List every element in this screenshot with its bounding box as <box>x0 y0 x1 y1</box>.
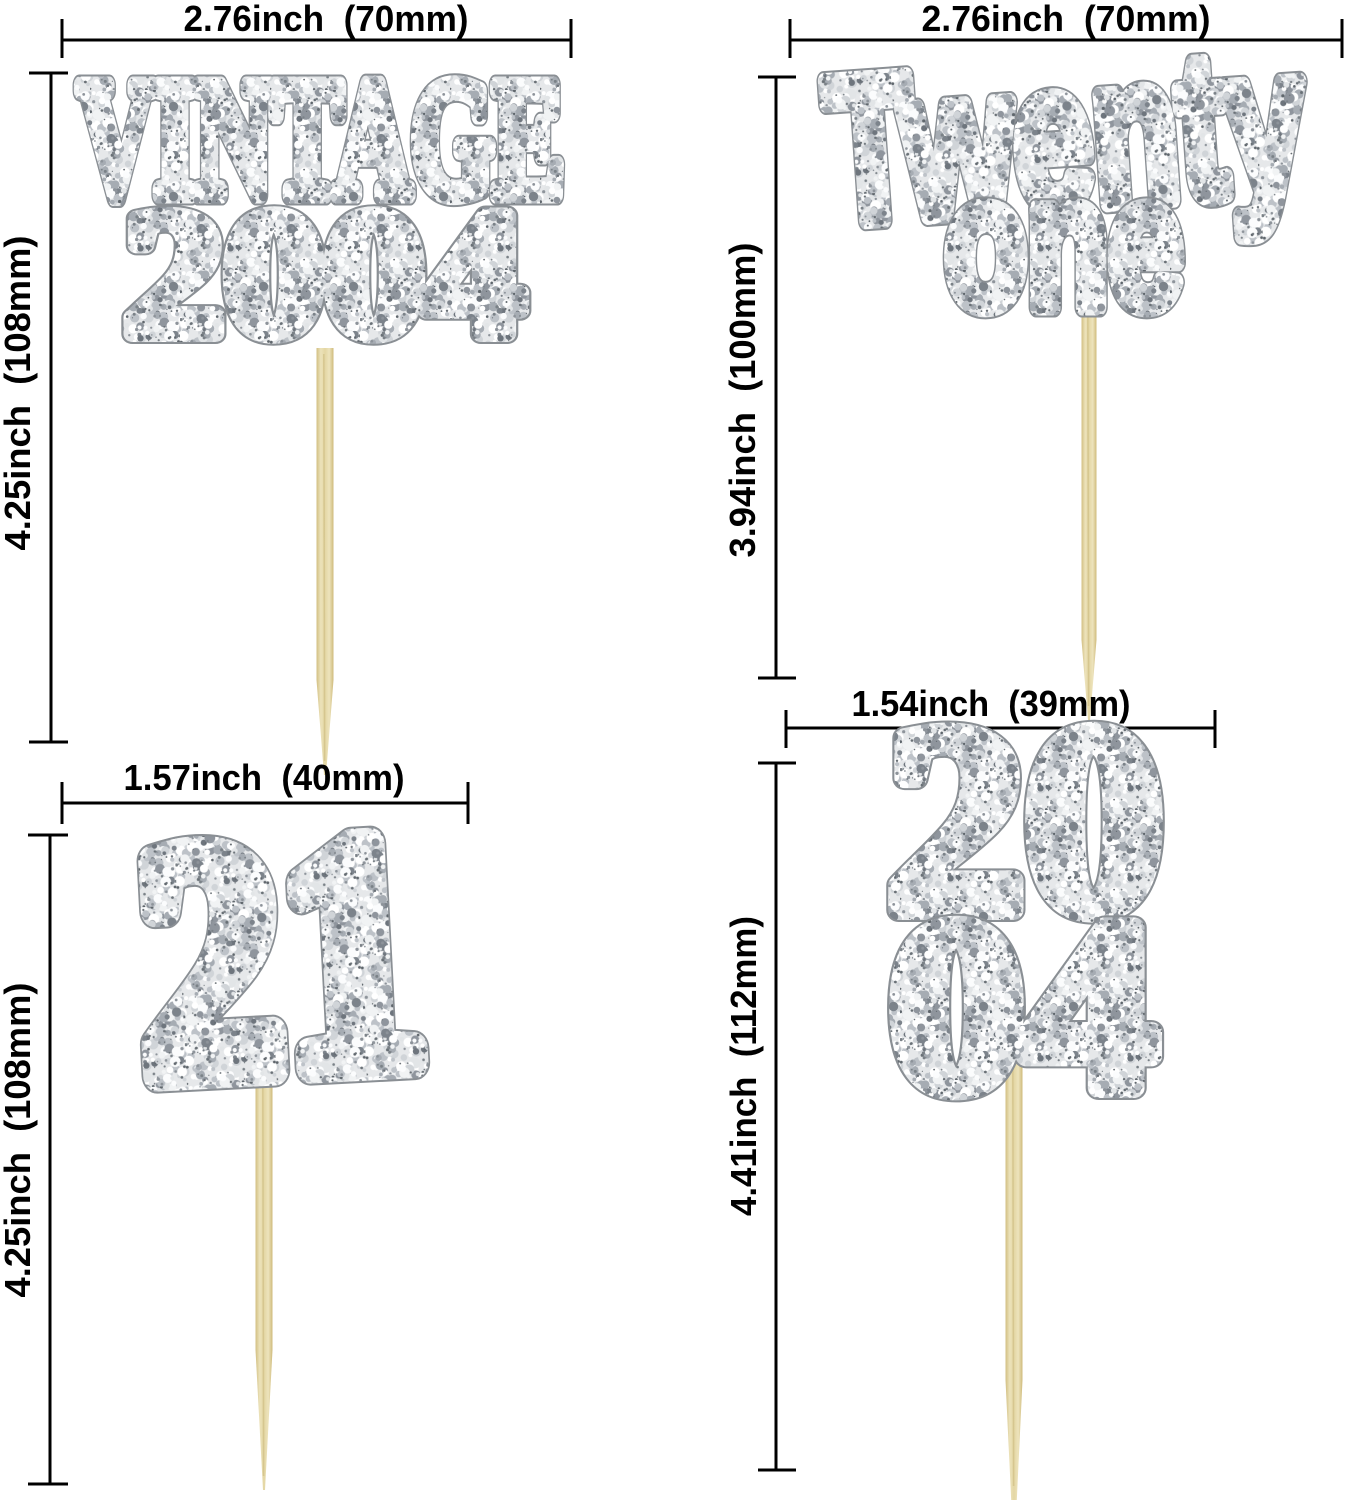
svg-text:3.94inch (100mm): 3.94inch (100mm) <box>722 243 763 558</box>
svg-text:4.25inch (108mm): 4.25inch (108mm) <box>0 236 38 551</box>
svg-text:2.76inch (70mm): 2.76inch (70mm) <box>184 0 469 39</box>
svg-text:04: 04 <box>890 871 1156 1141</box>
svg-text:4.41inch (112mm): 4.41inch (112mm) <box>723 916 764 1216</box>
svg-text:4.25inch (108mm): 4.25inch (108mm) <box>0 983 38 1298</box>
svg-text:one: one <box>945 140 1183 347</box>
svg-text:2004: 2004 <box>124 174 524 373</box>
svg-text:21: 21 <box>129 765 433 1149</box>
